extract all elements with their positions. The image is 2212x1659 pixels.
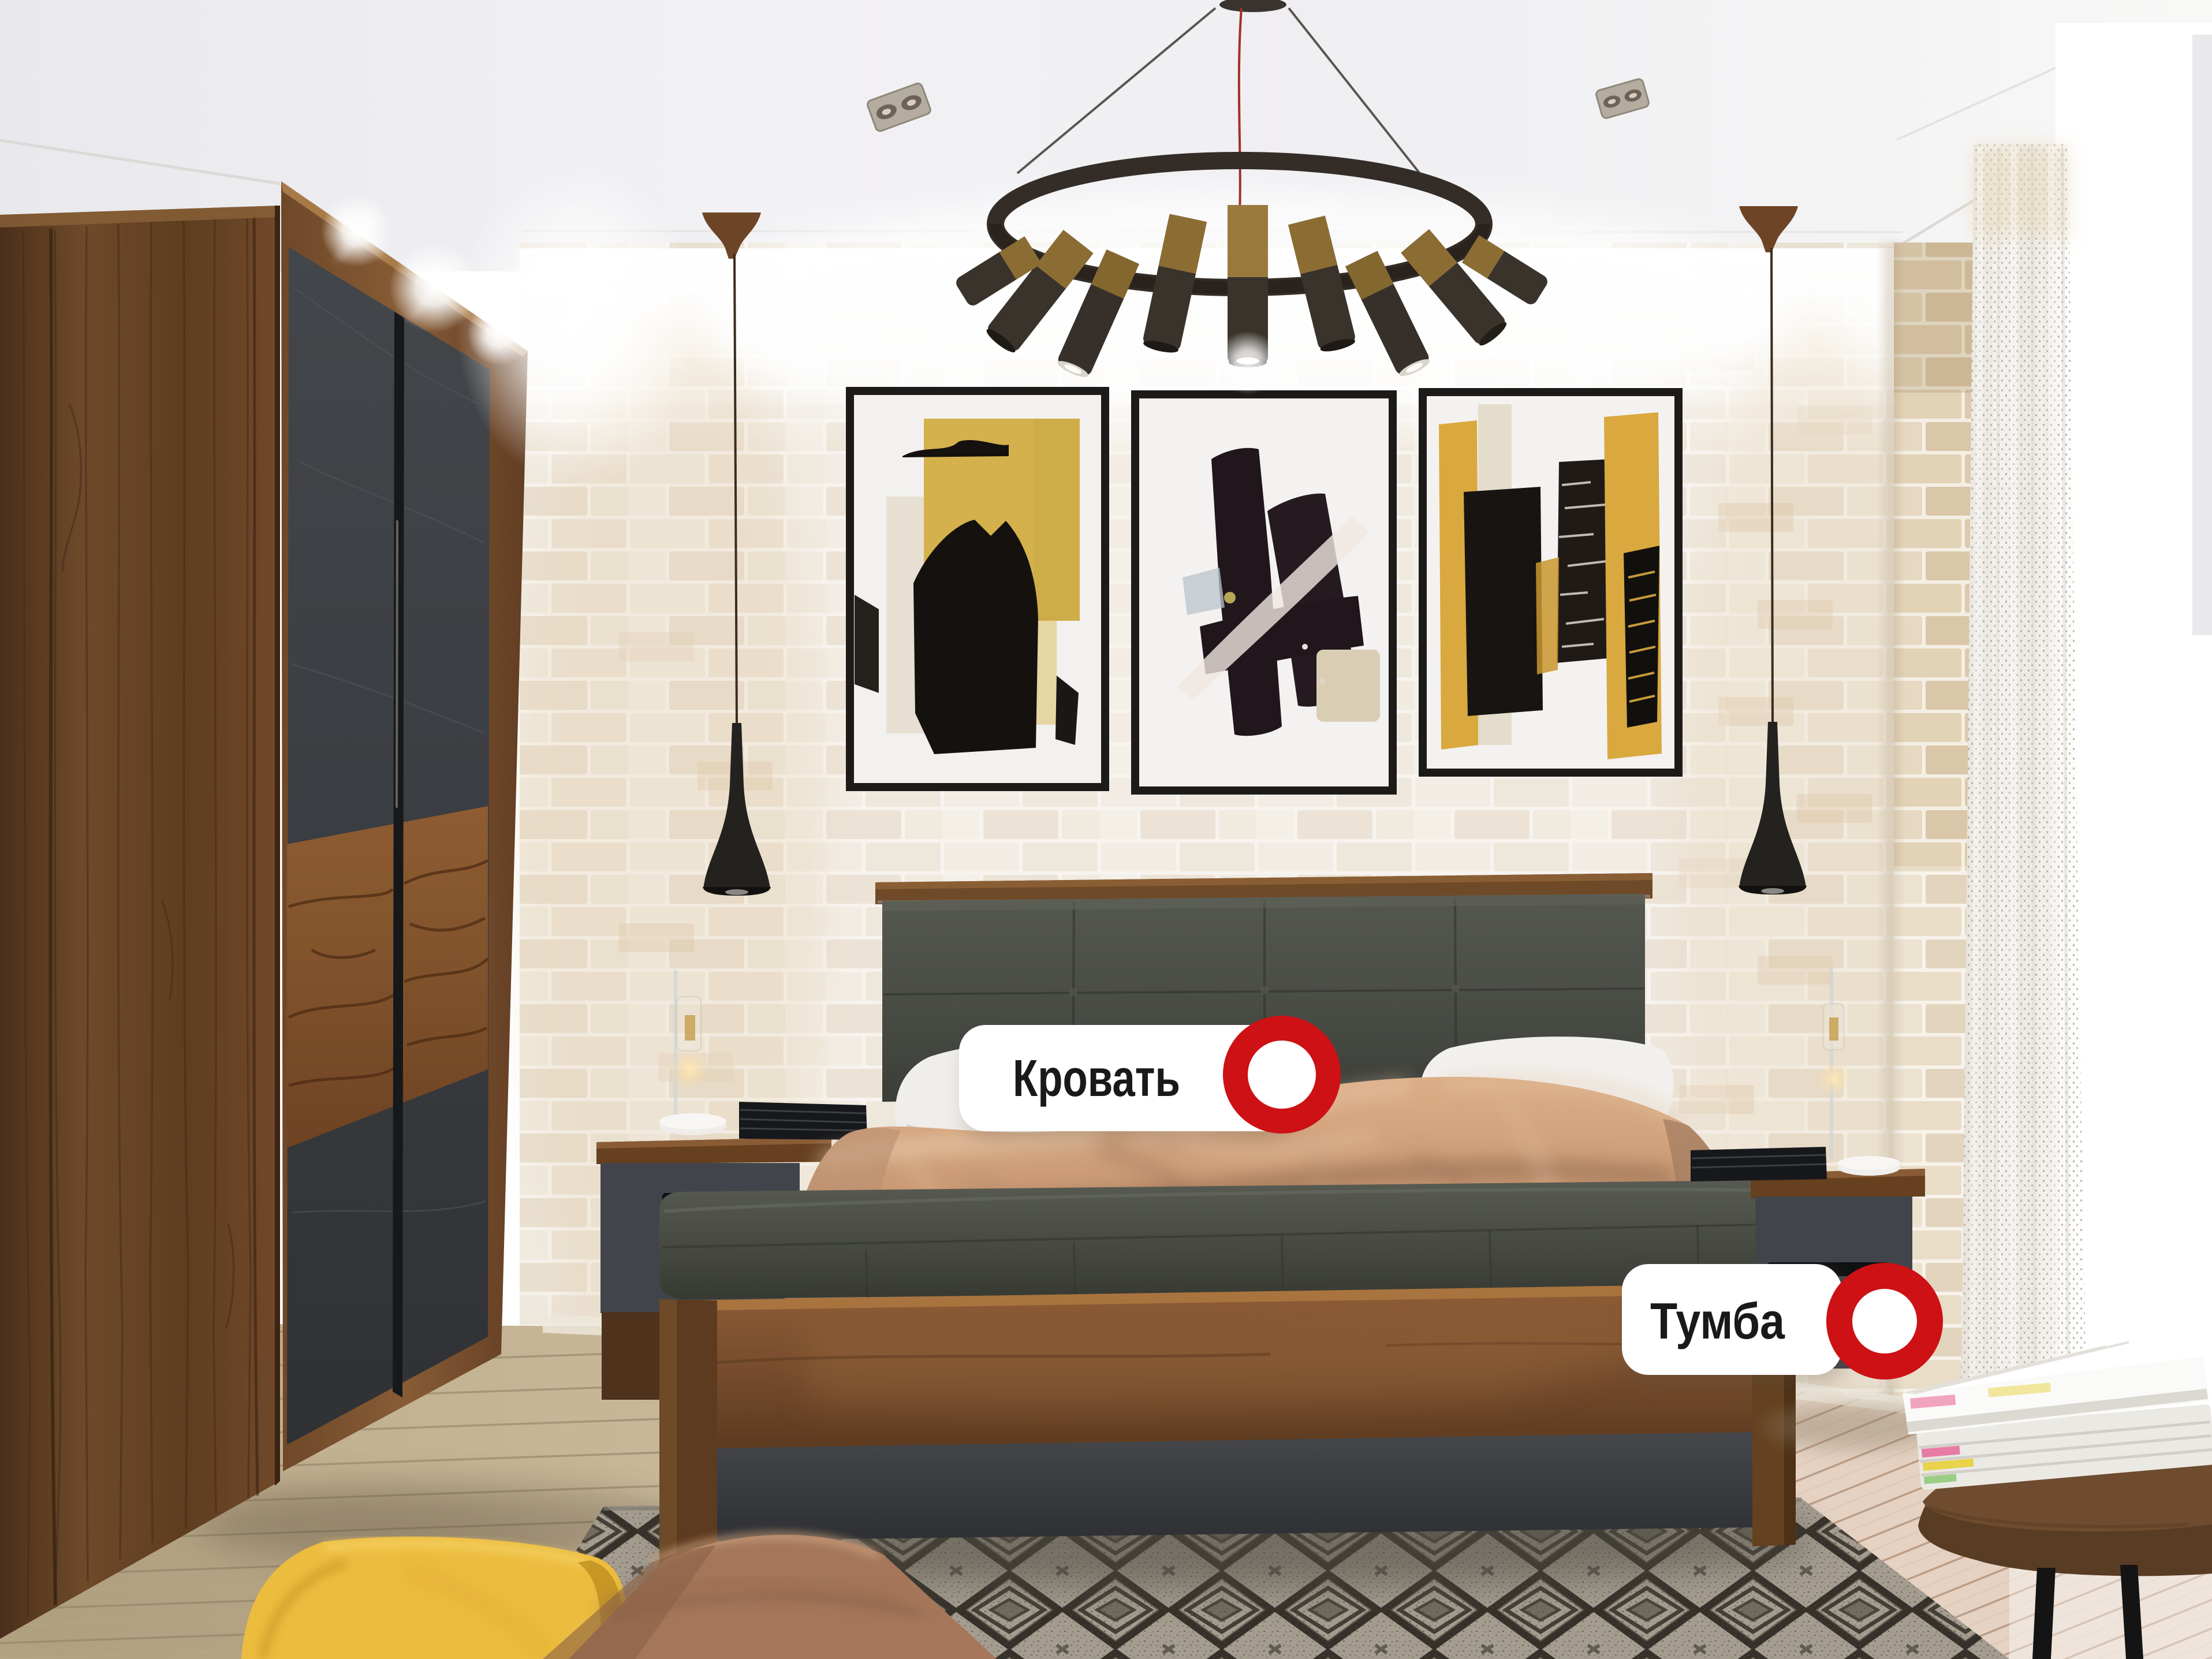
svg-text:Тумба: Тумба <box>1650 1292 1785 1349</box>
svg-text:Кровать: Кровать <box>1013 1050 1180 1108</box>
